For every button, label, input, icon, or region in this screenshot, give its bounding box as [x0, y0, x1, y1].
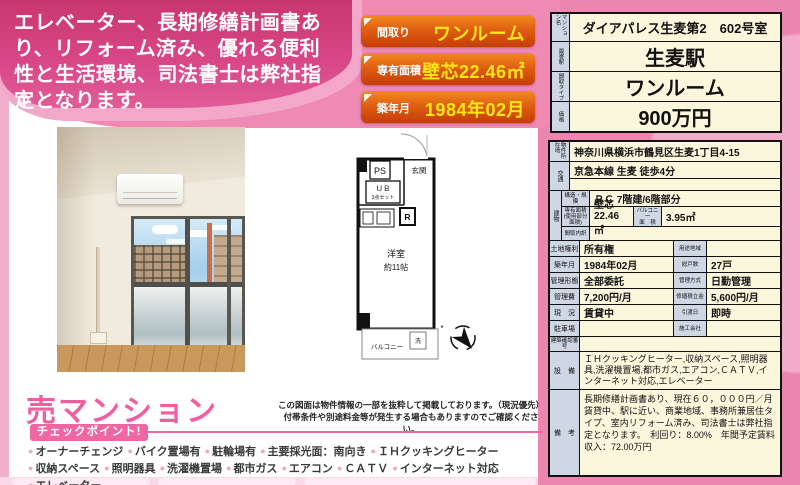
ribbon-chikunengetsu-label: 築年月: [377, 100, 410, 116]
area-label-sub: (使用部分面積): [562, 214, 589, 226]
checkpoint-label: ＣＡＴＶ: [344, 463, 388, 475]
unit-bath-sub-label: 3点セット: [372, 195, 395, 201]
detail-row-access: 交通 京急本線 生麦 徒歩4分: [550, 162, 780, 191]
summary-type-label: 間取タイプ: [552, 72, 570, 101]
checkpoint-label: 主要採光面：南向き: [268, 446, 367, 458]
summary-station-label: 最寄駅: [552, 42, 570, 71]
disclaimer-line1: この図面は物件情報の一部を抜粋して掲載しております。（現況優先）: [278, 399, 544, 411]
ribbon-madori: 間取り ワンルーム: [361, 15, 535, 47]
checkpoint-item: ●洗濯機置場: [156, 463, 222, 475]
row1-value2: 27戸: [707, 257, 780, 272]
balcony-area-value: 3.95㎡: [662, 207, 780, 226]
address-value: 神奈川県横浜市鶴見区生麦1丁目4-15: [570, 142, 780, 161]
row0-value1: 所有権: [580, 241, 674, 256]
headline-text: エレベーター、長期修繕計画書あり、リフォーム済み、優れる便利性と生活環境、司法書…: [14, 10, 340, 114]
detail-row-4col: 現 況 賃貸中 引渡日 即時: [550, 305, 780, 321]
row0-label2: 用途地域: [674, 241, 707, 256]
row3-value2: 5,600円/月: [707, 289, 780, 304]
detail-row-notes: 備 考 長期修繕計画書あり、現在６０，０００円／月賃貸中、駅に近い、商業地域、事…: [550, 390, 780, 475]
checkpoint-list: ●オーナーチェンジ●バイク置場有●駐輪場有●主要採光面：南向き●ＩＨクッキングヒ…: [24, 443, 545, 485]
access-value: 京急本線 生麦 徒歩4分: [570, 162, 780, 178]
area-value: 壁芯22.46㎡: [590, 207, 634, 226]
headline-box: エレベーター、長期修繕計画書あり、リフォーム済み、優れる便利性と生活環境、司法書…: [0, 0, 352, 108]
row3-label1: 管理費: [550, 289, 580, 304]
ribbon-menseki: 専有面積 壁芯22.46㎡: [361, 53, 535, 85]
checkpoint-label: バイク置場有: [135, 446, 201, 458]
row4-value1: 賃貸中: [580, 305, 674, 320]
area-row: 専有面積 (使用部分面積) 壁芯22.46㎡ バルコニー 面 積 3.95㎡: [562, 207, 780, 227]
checkpoint-label: 収納スペース: [35, 463, 100, 475]
bullet-icon: ●: [337, 463, 342, 473]
room-photo: [57, 127, 245, 372]
layout-row: 間取内訳: [562, 227, 780, 240]
photo-pole: [207, 223, 212, 287]
wall-corner-top: [358, 159, 367, 172]
unit-bath-label: ＵＢ: [376, 184, 391, 193]
detail-row-4col: 土地権利 所有権 用途地域: [550, 241, 780, 257]
row5-value1: [580, 321, 674, 336]
photo-building: [134, 245, 186, 287]
checkpoint-badge: チェックポイント!: [30, 424, 148, 441]
layout-value: [590, 227, 780, 240]
summary-row-type: 間取タイプ ワンルーム: [552, 72, 780, 102]
summary-name-value: ダイアパレス生麦第2 602号室: [570, 14, 780, 41]
checkpoint-item: ●都市ガス: [222, 463, 277, 475]
photo-pipe-box: [90, 332, 107, 344]
row1-value1: 1984年02月: [580, 257, 674, 272]
row1-label2: 総戸数: [674, 257, 707, 272]
compass-mark: *: [440, 324, 443, 333]
row2-value2: 日勤管理: [707, 273, 780, 288]
summary-type-value: ワンルーム: [570, 72, 780, 101]
outer-walls: [358, 159, 434, 329]
bullet-icon: ●: [205, 446, 210, 456]
bullet-icon: ●: [392, 463, 397, 473]
row3-value1: 7,200円/月: [580, 289, 674, 304]
photo-clouds: [152, 225, 178, 234]
floorplan: PS 玄関 ＵＢ 3点セット R 洋室 約11帖 バルコニー 洗 *: [350, 133, 545, 395]
photo-window-mullion-2: [227, 219, 231, 345]
row0-label1: 土地権利: [550, 241, 580, 256]
ribbon-chikunengetsu-value: 1984年02月: [425, 96, 525, 122]
checkpoint-item: ●エアコン: [277, 463, 332, 475]
ps-label: PS: [374, 166, 386, 176]
building-cells: 構造・規模 ＲＣ 7階建/6階部分 専有面積 (使用部分面積) 壁芯22.46㎡…: [562, 191, 780, 240]
detail-row-building: 建物 構造・規模 ＲＣ 7階建/6階部分 専有面積 (使用部分面積) 壁芯22.…: [550, 191, 780, 241]
checkpoint-item: ●インターネット対応: [388, 463, 498, 475]
row3-label2: 修繕積立金: [674, 289, 707, 304]
confirm-value: [580, 337, 780, 351]
bullet-icon: ●: [281, 463, 286, 473]
summary-row-price: 価格 900万円: [552, 102, 780, 131]
checkpoint-item: ●照明器具: [100, 463, 155, 475]
summary-station-value: 生麦駅: [570, 42, 780, 71]
layout-label: 間取内訳: [562, 227, 590, 240]
checkpoint-item: ●バイク置場有: [123, 446, 200, 458]
row1-label1: 築年月: [550, 257, 580, 272]
row2-label1: 管理形態: [550, 273, 580, 288]
bullet-icon: ●: [127, 446, 132, 456]
notes-label: 備 考: [550, 390, 580, 475]
ring-decoration-icon: [18, 94, 29, 105]
detail-row-confirm: 建築確認番号: [550, 337, 780, 352]
address-label: 物件所在地: [550, 142, 570, 161]
bullet-icon: ●: [226, 463, 231, 473]
detail-row-4col: 管理形態 全部委託 管理方式 日勤管理: [550, 273, 780, 289]
checkpoint-label: インターネット対応: [400, 463, 499, 475]
checkpoint-item: ●駐輪場有: [201, 446, 256, 458]
disclaimer: この図面は物件情報の一部を抜粋して掲載しております。（現況優先） 付帯条件や別途…: [278, 399, 544, 435]
ribbon-menseki-value: 壁芯22.46㎡: [422, 58, 525, 84]
checkpoint-label: 都市ガス: [233, 463, 277, 475]
photo-window-mullion: [185, 219, 190, 345]
ribbon-madori-value: ワンルーム: [433, 20, 525, 46]
bullet-icon: ●: [28, 480, 33, 485]
ribbon-madori-label: 間取り: [377, 24, 410, 40]
checkpoint-item: ●エレベーター: [24, 480, 101, 485]
summary-price-value: 900万円: [570, 102, 780, 131]
checkpoint-item: ●ＩＨクッキングヒーター: [367, 446, 499, 458]
summary-table: マンション名 ダイアパレス生麦第2 602号室 最寄駅 生麦駅 間取タイプ ワン…: [550, 12, 782, 133]
checkpoint-item: ●収納スペース: [24, 463, 100, 475]
row2-label2: 管理方式: [674, 273, 707, 288]
checkpoint-label: 洗濯機置場: [167, 463, 222, 475]
area-label: 専有面積 (使用部分面積): [562, 207, 590, 226]
ribbon-menseki-label: 専有面積: [377, 62, 421, 78]
access-value2: [570, 179, 780, 190]
row4-label1: 現 況: [550, 305, 580, 320]
wall-corner-bottom: [358, 313, 370, 329]
detail-table: 物件所在地 神奈川県横浜市鶴見区生麦1丁目4-15 交通 京急本線 生麦 徒歩4…: [548, 140, 782, 477]
row5-value2: [707, 321, 780, 336]
bullet-icon: ●: [28, 446, 33, 456]
entrance-label: 玄関: [412, 165, 427, 175]
summary-row-station: 最寄駅 生麦駅: [552, 42, 780, 72]
access-row2: [570, 179, 780, 190]
structure-label: 構造・規模: [562, 191, 590, 206]
checkpoint-item: ●ＣＡＴＶ: [333, 463, 388, 475]
access-label: 交通: [550, 162, 570, 190]
bullet-icon: ●: [260, 446, 265, 456]
access-cells: 京急本線 生麦 徒歩4分: [570, 162, 780, 190]
checkpoint-item: ●オーナーチェンジ: [24, 446, 123, 458]
checkpoint-label: エレベーター: [35, 480, 101, 485]
detail-row-address: 物件所在地 神奈川県横浜市鶴見区生麦1丁目4-15: [550, 142, 780, 162]
row0-value2: [707, 241, 780, 256]
detail-row-equipment: 設 備 ＩＨクッキングヒーター,収納スペース,照明器具,洗濯機置場,都市ガス,エ…: [550, 352, 780, 390]
checkpoint-label: オーナーチェンジ: [35, 446, 123, 458]
room-label: 洋室: [387, 248, 405, 259]
confirm-label: 建築確認番号: [550, 337, 580, 351]
checkpoint-label: 照明器具: [112, 463, 156, 475]
row5-label2: 施工会社: [674, 321, 707, 336]
row4-label2: 引渡日: [674, 305, 707, 320]
bullet-icon: ●: [160, 463, 165, 473]
checkpoint-item: ●主要採光面：南向き: [256, 446, 366, 458]
notes-value: 長期修繕計画書あり、現在６０，０００円／月賃貸中、駅に近い、商業地域、事務所兼居…: [580, 390, 780, 475]
summary-name-label: マンション名: [552, 14, 570, 41]
detail-row-4col: 管理費 7,200円/月 修繕積立金 5,600円/月: [550, 289, 780, 305]
detail-row-4col: 駐車場 施工会社: [550, 321, 780, 337]
checkpoint-label: 駐輪場有: [212, 446, 256, 458]
access-row1: 京急本線 生麦 徒歩4分: [570, 162, 780, 179]
photo-wood-floor: [57, 345, 245, 372]
summary-price-label: 価格: [552, 102, 570, 131]
equipment-value: ＩＨクッキングヒーター,収納スペース,照明器具,洗濯機置場,都市ガス,エアコン,…: [580, 352, 780, 389]
balcony-label-line1: バルコニー: [634, 208, 661, 220]
room-size-label: 約11帖: [384, 262, 408, 272]
entrance-door-arc: [401, 134, 427, 159]
bullet-icon: ●: [371, 446, 376, 456]
photo-air-conditioner: [117, 174, 183, 204]
checkpoint-label: エアコン: [289, 463, 333, 475]
flyer-page: エレベーター、長期修繕計画書あり、リフォーム済み、優れる便利性と生活環境、司法書…: [0, 0, 800, 485]
building-label: 建物: [550, 191, 562, 240]
bullet-icon: ●: [104, 463, 109, 473]
row4-value2: 即時: [707, 305, 780, 320]
ribbon-chikunengetsu: 築年月 1984年02月: [361, 91, 535, 123]
checkpoint-divider: [140, 431, 543, 433]
row2-value1: 全部委託: [580, 273, 674, 288]
summary-row-name: マンション名 ダイアパレス生麦第2 602号室: [552, 14, 780, 42]
row5-label1: 駐車場: [550, 321, 580, 336]
photo-window: [131, 216, 245, 348]
equipment-label: 設 備: [550, 352, 580, 389]
washer-label: 洗: [415, 337, 421, 345]
balcony-area-label: バルコニー 面 積: [634, 207, 662, 226]
bullet-icon: ●: [28, 463, 33, 473]
balcony-label-line2: 面 積: [639, 220, 656, 226]
photo-pipe: [96, 247, 100, 339]
detail-row-4col: 築年月 1984年02月 総戸数 27戸: [550, 257, 780, 273]
balcony-label: バルコニー: [371, 343, 403, 351]
refrigerator-label: R: [404, 212, 410, 222]
checkpoint-label: ＩＨクッキングヒーター: [378, 446, 499, 458]
